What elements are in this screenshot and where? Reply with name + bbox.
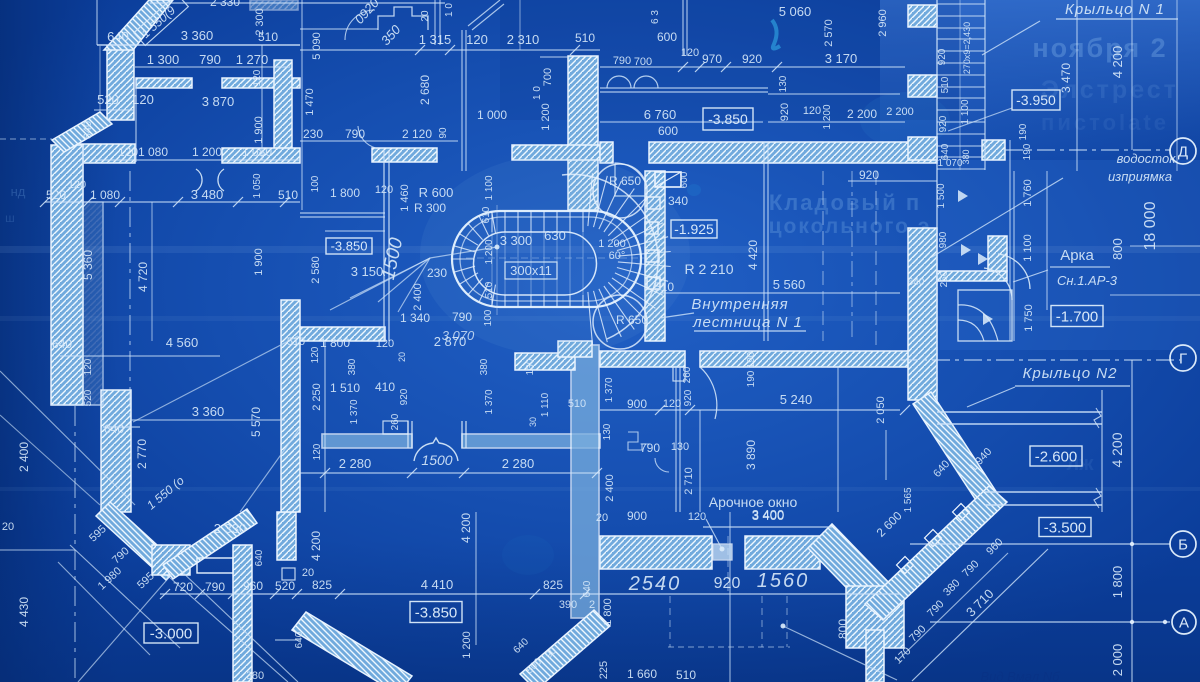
svg-text:-3.500: -3.500 bbox=[1044, 519, 1087, 536]
svg-text:2 330: 2 330 bbox=[214, 521, 247, 536]
svg-text:720: 720 bbox=[173, 580, 193, 594]
svg-text:230: 230 bbox=[303, 127, 323, 141]
svg-text:-1.925: -1.925 bbox=[674, 221, 714, 237]
svg-text:4 720: 4 720 bbox=[136, 262, 150, 292]
svg-text:600: 600 bbox=[679, 171, 690, 188]
svg-text:20: 20 bbox=[2, 521, 14, 533]
svg-text:4 200: 4 200 bbox=[309, 531, 323, 561]
svg-text:510: 510 bbox=[940, 76, 951, 93]
svg-text:130: 130 bbox=[602, 423, 613, 440]
svg-text:120: 120 bbox=[466, 32, 488, 47]
svg-text:380: 380 bbox=[347, 358, 358, 375]
svg-text:920: 920 bbox=[779, 103, 791, 121]
svg-text:600: 600 bbox=[657, 30, 677, 44]
svg-text:2 300: 2 300 bbox=[254, 8, 266, 36]
svg-text:700: 700 bbox=[542, 68, 554, 86]
svg-text:120: 120 bbox=[310, 346, 321, 363]
svg-text:120: 120 bbox=[68, 179, 86, 191]
svg-text:1 100: 1 100 bbox=[484, 175, 495, 200]
svg-text:3 400: 3 400 bbox=[752, 507, 785, 522]
svg-text:1 100: 1 100 bbox=[960, 99, 971, 124]
svg-text:640: 640 bbox=[582, 580, 593, 597]
svg-text:1 660: 1 660 bbox=[627, 667, 657, 681]
svg-text:260: 260 bbox=[390, 413, 401, 430]
svg-text:920: 920 bbox=[714, 575, 741, 592]
svg-text:920: 920 bbox=[937, 48, 948, 65]
svg-text:2 400: 2 400 bbox=[412, 283, 424, 311]
svg-text:510: 510 bbox=[568, 398, 586, 410]
svg-text:120: 120 bbox=[375, 184, 393, 196]
svg-text:920: 920 bbox=[683, 389, 694, 406]
svg-text:2 120: 2 120 bbox=[402, 127, 432, 141]
svg-text:60°: 60° bbox=[609, 250, 626, 262]
svg-text:1 800: 1 800 bbox=[1110, 566, 1125, 599]
svg-text:1 565: 1 565 bbox=[903, 487, 914, 512]
svg-text:30: 30 bbox=[528, 417, 538, 427]
svg-text:3 300: 3 300 bbox=[500, 233, 533, 248]
svg-text:2 330: 2 330 bbox=[210, 0, 240, 9]
svg-text:2 580: 2 580 bbox=[310, 256, 322, 284]
svg-text:120: 120 bbox=[252, 69, 263, 86]
svg-text:1 200: 1 200 bbox=[192, 145, 222, 159]
svg-text:120: 120 bbox=[688, 511, 706, 523]
svg-text:4 200: 4 200 bbox=[1110, 46, 1125, 79]
svg-text:1 470: 1 470 bbox=[304, 88, 316, 116]
svg-text:790: 790 bbox=[345, 127, 365, 141]
svg-text:1 800: 1 800 bbox=[330, 186, 360, 200]
svg-text:600: 600 bbox=[658, 124, 678, 138]
svg-text:1 750: 1 750 bbox=[1023, 304, 1035, 332]
svg-text:640: 640 bbox=[82, 121, 94, 139]
svg-text:790: 790 bbox=[613, 55, 631, 67]
svg-text:R 2 210: R 2 210 bbox=[684, 261, 733, 277]
svg-text:пистоlate: пистоlate bbox=[1041, 110, 1169, 135]
svg-text:20: 20 bbox=[302, 567, 314, 579]
svg-text:510: 510 bbox=[575, 31, 595, 45]
svg-text:920: 920 bbox=[859, 168, 879, 182]
svg-text:6 760: 6 760 bbox=[644, 107, 677, 122]
svg-text:120: 120 bbox=[132, 92, 154, 107]
svg-text:920: 920 bbox=[399, 388, 410, 405]
svg-text:1201 080: 1201 080 bbox=[118, 145, 168, 159]
svg-text:Д: Д bbox=[1178, 144, 1188, 161]
svg-text:520: 520 bbox=[46, 188, 66, 202]
svg-text:1 760: 1 760 bbox=[1022, 179, 1034, 207]
svg-text:790: 790 bbox=[205, 580, 225, 594]
svg-text:1 340: 1 340 bbox=[400, 311, 430, 325]
svg-text:Кладовый п: Кладовый п bbox=[769, 190, 921, 215]
svg-text:-3.850: -3.850 bbox=[708, 111, 748, 127]
svg-text:2 960: 2 960 bbox=[877, 9, 889, 37]
svg-text:630: 630 bbox=[544, 228, 566, 243]
svg-text:ноября 2: ноября 2 bbox=[1032, 33, 1167, 63]
svg-text:3 470: 3 470 bbox=[1059, 63, 1073, 93]
svg-text:2 200: 2 200 bbox=[886, 106, 914, 118]
svg-text:225: 225 bbox=[598, 661, 610, 679]
svg-text:1 370: 1 370 bbox=[484, 389, 495, 414]
svg-text:2540: 2540 bbox=[628, 573, 682, 595]
svg-text:640: 640 bbox=[52, 337, 72, 351]
svg-text:-3.000: -3.000 bbox=[150, 625, 193, 642]
svg-text:510: 510 bbox=[484, 281, 495, 298]
svg-text:R 650: R 650 bbox=[609, 174, 641, 188]
svg-text:5 570: 5 570 bbox=[249, 407, 263, 437]
svg-text:100: 100 bbox=[310, 175, 321, 192]
svg-text:190: 190 bbox=[746, 351, 757, 368]
svg-text:120: 120 bbox=[663, 398, 681, 410]
svg-text:790: 790 bbox=[640, 441, 660, 455]
svg-text:920: 920 bbox=[938, 115, 949, 132]
svg-text:2 000: 2 000 bbox=[1110, 644, 1125, 677]
svg-text:1 510: 1 510 bbox=[330, 381, 360, 395]
svg-text:1 900: 1 900 bbox=[253, 116, 265, 144]
svg-text:Г: Г bbox=[1179, 351, 1187, 368]
svg-text:2 200: 2 200 bbox=[847, 107, 877, 121]
svg-text:нд: нд bbox=[11, 184, 26, 199]
svg-text:1 460: 1 460 bbox=[399, 184, 411, 212]
svg-text:120: 120 bbox=[803, 105, 821, 117]
svg-text:20: 20 bbox=[420, 10, 431, 22]
svg-text:120: 120 bbox=[681, 47, 699, 59]
svg-text:1 100: 1 100 bbox=[1022, 234, 1034, 262]
svg-text:-3.950: -3.950 bbox=[1016, 92, 1056, 108]
svg-text:1 300: 1 300 bbox=[147, 52, 180, 67]
svg-text:250: 250 bbox=[939, 270, 950, 287]
svg-text:1 200: 1 200 bbox=[822, 104, 833, 129]
svg-text:4 200: 4 200 bbox=[1109, 432, 1125, 467]
svg-text:-3.850: -3.850 bbox=[331, 239, 368, 254]
svg-text:5 360: 5 360 bbox=[81, 250, 95, 280]
svg-text:20: 20 bbox=[596, 512, 608, 524]
svg-text:1 0: 1 0 bbox=[444, 3, 455, 17]
svg-text:2 250: 2 250 bbox=[311, 383, 323, 411]
svg-text:380: 380 bbox=[246, 670, 264, 682]
svg-text:520: 520 bbox=[275, 579, 295, 593]
svg-text:1 080: 1 080 bbox=[242, 145, 272, 159]
svg-text:-3.850: -3.850 bbox=[415, 604, 458, 621]
svg-text:1 110: 1 110 bbox=[540, 392, 551, 417]
svg-text:900: 900 bbox=[627, 397, 647, 411]
svg-text:100: 100 bbox=[483, 309, 494, 326]
svg-text:1 200: 1 200 bbox=[540, 103, 552, 131]
svg-text:5 090: 5 090 bbox=[311, 32, 323, 60]
svg-text:120: 120 bbox=[312, 443, 323, 460]
svg-text:640: 640 bbox=[104, 422, 124, 436]
svg-text:2 400: 2 400 bbox=[604, 474, 616, 502]
svg-text:1 000: 1 000 bbox=[477, 108, 507, 122]
svg-text:2 050: 2 050 bbox=[875, 396, 887, 424]
svg-text:410: 410 bbox=[375, 380, 395, 394]
svg-text:-2.600: -2.600 bbox=[1035, 448, 1078, 465]
svg-text:1 800: 1 800 bbox=[320, 336, 350, 350]
svg-text:изприямка: изприямка bbox=[1108, 169, 1172, 184]
svg-text:1 070: 1 070 bbox=[937, 158, 962, 169]
svg-text:825: 825 bbox=[543, 578, 563, 592]
svg-text:970: 970 bbox=[702, 52, 722, 66]
svg-text:640: 640 bbox=[107, 29, 129, 44]
svg-text:-1.700: -1.700 bbox=[1056, 308, 1099, 325]
svg-text:2: 2 bbox=[589, 599, 595, 611]
svg-text:120: 120 bbox=[376, 338, 394, 350]
svg-text:3 870: 3 870 bbox=[202, 94, 235, 109]
svg-text:А: А bbox=[1179, 615, 1189, 632]
svg-text:2 400: 2 400 bbox=[17, 442, 31, 472]
svg-text:3 360: 3 360 bbox=[181, 28, 214, 43]
svg-text:130: 130 bbox=[671, 441, 689, 453]
svg-text:190: 190 bbox=[1018, 123, 1029, 140]
svg-text:1 315: 1 315 bbox=[419, 32, 452, 47]
svg-text:2 280: 2 280 bbox=[502, 456, 535, 471]
svg-text:230: 230 bbox=[427, 266, 447, 280]
svg-text:1500: 1500 bbox=[421, 452, 452, 468]
svg-text:640: 640 bbox=[294, 631, 305, 648]
svg-text:790: 790 bbox=[199, 52, 221, 67]
svg-text:2 310: 2 310 bbox=[507, 32, 540, 47]
svg-text:1560: 1560 bbox=[757, 570, 810, 592]
svg-text:130: 130 bbox=[525, 358, 536, 375]
svg-text:водосток: водосток bbox=[1117, 151, 1177, 166]
svg-text:R 300: R 300 bbox=[414, 201, 446, 215]
svg-text:R 600: R 600 bbox=[419, 185, 454, 200]
svg-text:260: 260 bbox=[682, 366, 693, 383]
svg-text:4 420: 4 420 bbox=[746, 240, 760, 270]
svg-text:2 710: 2 710 bbox=[683, 467, 695, 495]
svg-text:120: 120 bbox=[83, 358, 94, 375]
svg-text:R 650: R 650 bbox=[616, 313, 648, 327]
svg-text:1 200: 1 200 bbox=[484, 239, 495, 264]
svg-text:1 050: 1 050 bbox=[252, 173, 263, 198]
svg-text:3 070: 3 070 bbox=[442, 328, 475, 343]
svg-text:3 170: 3 170 bbox=[825, 51, 858, 66]
svg-text:2 770: 2 770 bbox=[135, 439, 149, 469]
svg-text:Крыльцо N 1: Крыльцо N 1 bbox=[1065, 1, 1165, 18]
svg-text:800: 800 bbox=[1110, 238, 1125, 260]
svg-text:640: 640 bbox=[254, 549, 265, 566]
svg-text:640: 640 bbox=[908, 277, 925, 288]
svg-text:1 200: 1 200 bbox=[461, 631, 473, 659]
svg-text:3 360: 3 360 bbox=[192, 404, 225, 419]
svg-text:920: 920 bbox=[742, 52, 762, 66]
svg-text:1 370: 1 370 bbox=[604, 377, 615, 402]
svg-text:4 560: 4 560 bbox=[166, 335, 199, 350]
svg-text:790: 790 bbox=[452, 310, 472, 324]
svg-text:1 800: 1 800 bbox=[602, 598, 614, 626]
svg-text:4 430: 4 430 bbox=[17, 597, 31, 627]
svg-text:520: 520 bbox=[83, 389, 94, 406]
svg-text:Арка: Арка bbox=[1060, 247, 1094, 264]
svg-text:Крыльцо N2: Крыльцо N2 bbox=[1023, 365, 1118, 382]
svg-text:610: 610 bbox=[481, 206, 492, 223]
svg-text:4 200: 4 200 bbox=[459, 513, 473, 543]
svg-text:980: 980 bbox=[938, 231, 949, 248]
svg-text:5 240: 5 240 bbox=[780, 392, 813, 407]
svg-text:510: 510 bbox=[654, 280, 674, 294]
svg-text:800: 800 bbox=[836, 619, 850, 639]
svg-text:510: 510 bbox=[287, 336, 305, 348]
svg-text:2 570: 2 570 bbox=[823, 19, 835, 47]
svg-text:900: 900 bbox=[627, 509, 647, 523]
svg-text:190: 190 bbox=[746, 370, 757, 387]
svg-text:2 280: 2 280 bbox=[339, 456, 372, 471]
svg-text:цокольного э: цокольного э bbox=[769, 215, 932, 238]
svg-text:825: 825 bbox=[312, 578, 332, 592]
svg-text:5 060: 5 060 bbox=[779, 4, 812, 19]
svg-text:1 370: 1 370 bbox=[349, 399, 360, 424]
svg-text:340: 340 bbox=[668, 194, 688, 208]
svg-text:Б: Б bbox=[1178, 537, 1188, 554]
svg-text:лестница N 1: лестница N 1 bbox=[692, 314, 803, 331]
svg-text:960: 960 bbox=[243, 579, 263, 593]
svg-text:130: 130 bbox=[778, 75, 789, 92]
svg-text:5 560: 5 560 bbox=[773, 277, 806, 292]
svg-text:1 900: 1 900 bbox=[253, 248, 265, 276]
svg-text:190: 190 bbox=[1022, 143, 1033, 160]
svg-text:Вид Вмал Nб: Вид Вмал Nб bbox=[980, 669, 1060, 682]
svg-text:18 000: 18 000 bbox=[1142, 201, 1159, 250]
svg-text:510: 510 bbox=[278, 188, 298, 202]
svg-text:1 0: 1 0 bbox=[532, 86, 543, 100]
svg-text:1 270: 1 270 bbox=[236, 52, 269, 67]
svg-text:270x9=2,430: 270x9=2,430 bbox=[962, 22, 972, 74]
svg-text:1 200: 1 200 bbox=[598, 238, 626, 250]
svg-text:1 080: 1 080 bbox=[90, 188, 120, 202]
svg-text:90: 90 bbox=[438, 127, 449, 139]
svg-text:1 500: 1 500 bbox=[936, 183, 947, 208]
svg-text:390: 390 bbox=[559, 599, 577, 611]
svg-text:520: 520 bbox=[97, 92, 119, 107]
svg-text:380: 380 bbox=[479, 358, 490, 375]
svg-text:4 410: 4 410 bbox=[421, 577, 454, 592]
svg-text:2 680: 2 680 bbox=[418, 75, 432, 105]
svg-text:Сн.1.АР-3: Сн.1.АР-3 bbox=[1057, 273, 1118, 288]
svg-text:20: 20 bbox=[397, 352, 407, 362]
svg-text:700: 700 bbox=[634, 56, 652, 68]
svg-text:300x11: 300x11 bbox=[510, 263, 552, 278]
svg-text:Внутренняя: Внутренняя bbox=[691, 296, 788, 313]
svg-text:3 890: 3 890 bbox=[744, 440, 758, 470]
svg-text:3 480: 3 480 bbox=[191, 187, 224, 202]
svg-text:6 3: 6 3 bbox=[650, 10, 661, 24]
svg-text:ш: ш bbox=[5, 211, 15, 225]
svg-text:510: 510 bbox=[676, 668, 696, 682]
